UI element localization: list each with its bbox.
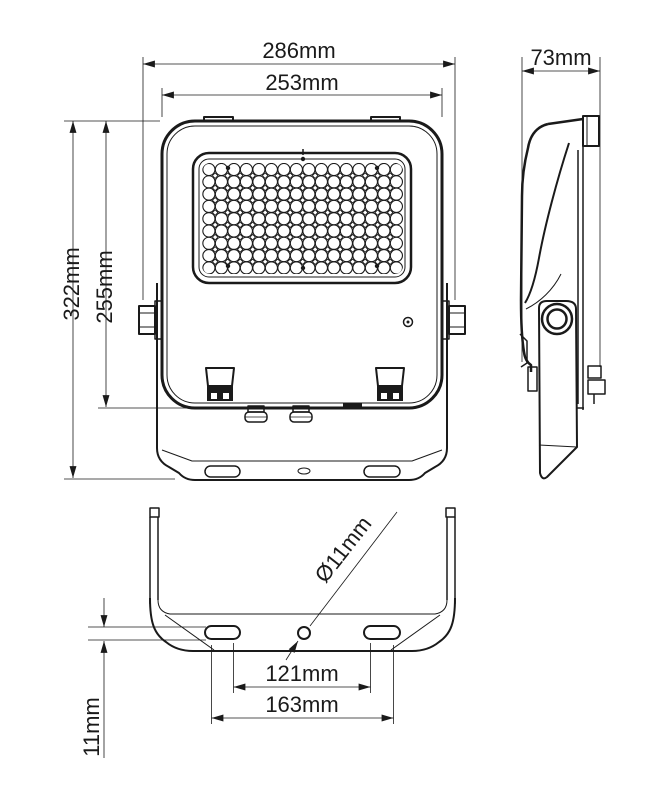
dim-label-slot-span-inner: 121mm xyxy=(265,661,338,686)
bottom-bracket-arm-right xyxy=(446,508,455,604)
pivot-bolt-right xyxy=(442,301,465,339)
dim-label-body-height: 255mm xyxy=(92,250,117,323)
dim-label-hole-diameter: Ø11mm xyxy=(310,512,377,588)
mount-slot-left xyxy=(205,626,240,639)
dim-plate-thickness: 11mm xyxy=(79,598,206,758)
side-back-clip-upper xyxy=(588,366,601,378)
side-view xyxy=(520,116,605,478)
bracket-slot-left-edge xyxy=(205,466,240,477)
bottom-base-plate xyxy=(150,598,455,651)
dim-body-width: 253mm xyxy=(162,70,442,117)
side-bracket-arm xyxy=(539,301,577,478)
mount-slot-right xyxy=(364,626,400,639)
drawing-canvas: 286mm 253mm 322mm 255mm 73mm xyxy=(0,0,650,800)
side-back-clip-lower xyxy=(588,380,605,394)
dim-label-plate-thickness: 11mm xyxy=(79,697,104,757)
side-top-tab xyxy=(583,116,599,146)
bottom-label-mark xyxy=(343,403,362,409)
bracket-slot-right-edge xyxy=(364,466,400,477)
front-view xyxy=(139,117,465,480)
floodlight-technical-drawing: 286mm 253mm 322mm 255mm 73mm xyxy=(0,0,650,800)
pivot-bolt-left xyxy=(139,301,162,339)
dim-label-body-width: 253mm xyxy=(265,70,338,95)
dim-label-overall-height: 322mm xyxy=(59,247,84,320)
dim-label-overall-width: 286mm xyxy=(262,38,335,63)
bottom-view xyxy=(150,508,455,651)
dim-label-depth: 73mm xyxy=(530,45,591,70)
bracket-hole-edge xyxy=(298,468,310,474)
dim-hole-diameter: Ø11mm xyxy=(286,512,397,660)
mount-hole-center xyxy=(298,627,310,639)
dim-label-slot-span-outer: 163mm xyxy=(265,692,338,717)
bottom-bracket-arm-left xyxy=(150,508,159,604)
